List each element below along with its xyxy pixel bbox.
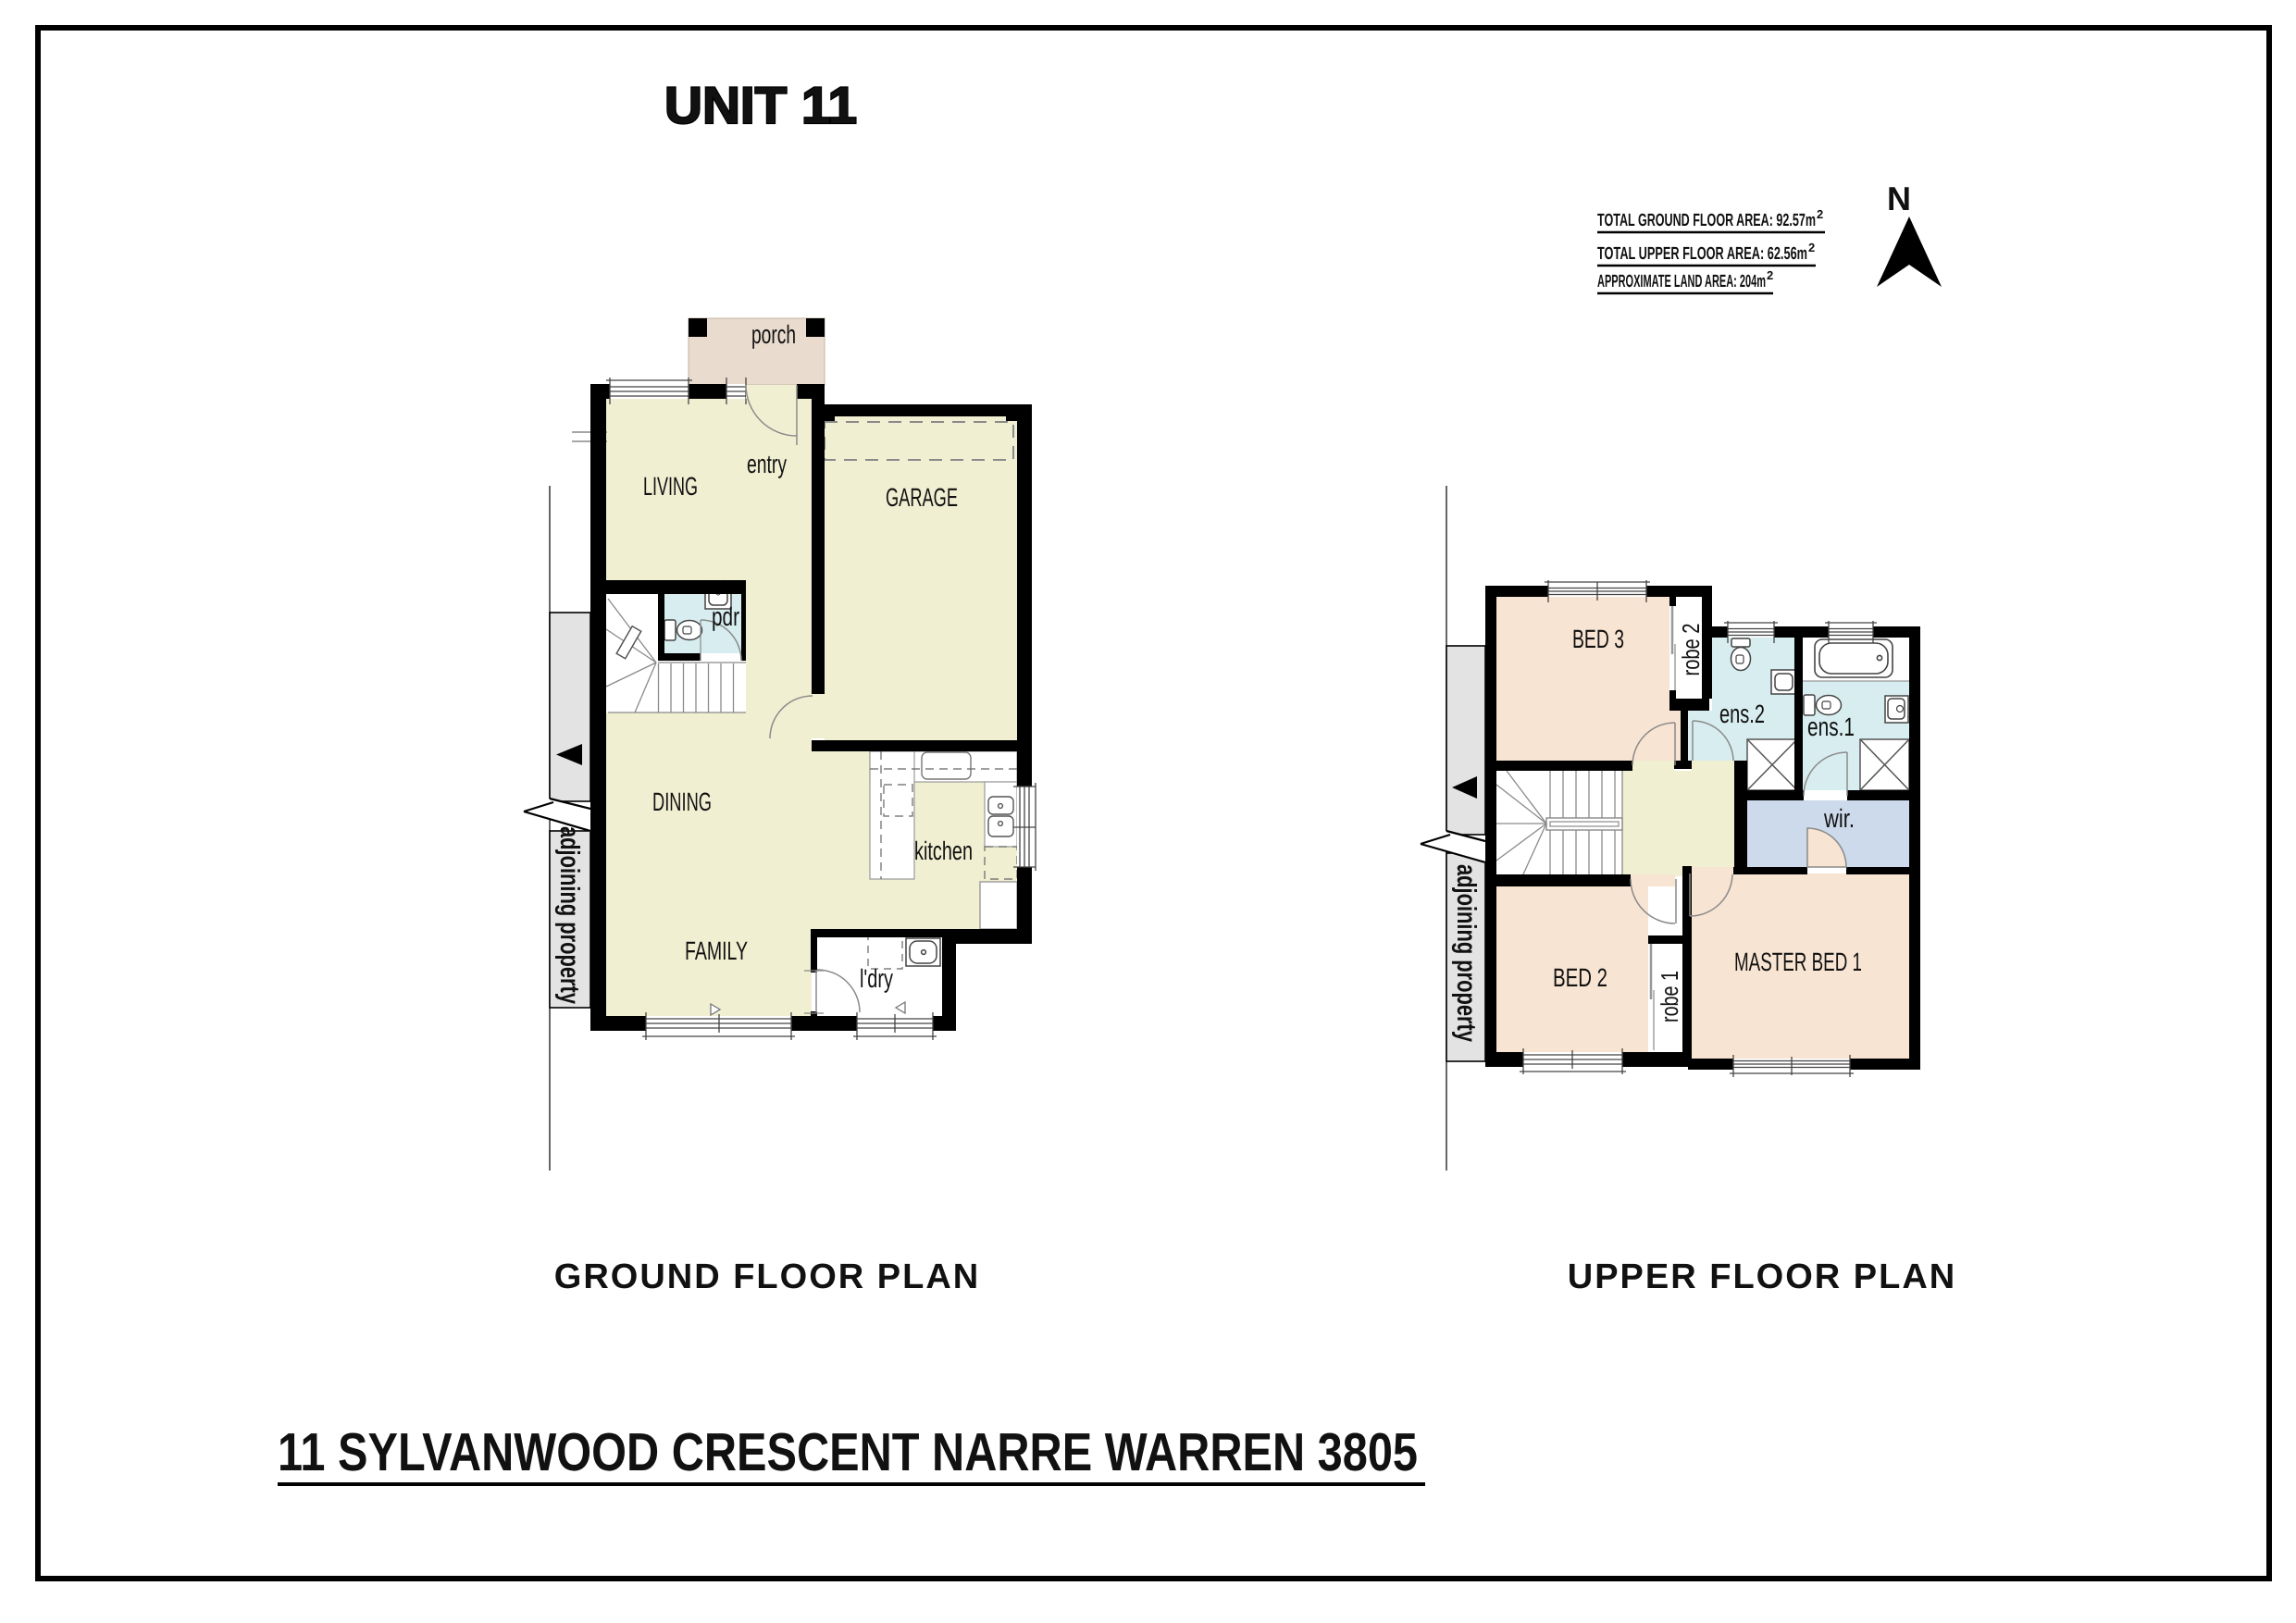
svg-text:DINING: DINING — [652, 787, 712, 816]
svg-text:2: 2 — [1808, 241, 1815, 254]
svg-text:ens.2: ens.2 — [1719, 700, 1765, 728]
svg-text:MASTER BED 1: MASTER BED 1 — [1734, 948, 1862, 976]
svg-text:11 SYLVANWOOD CRESCENT NARRE W: 11 SYLVANWOOD CRESCENT NARRE WARREN 3805 — [278, 1422, 1418, 1482]
svg-text:2: 2 — [1817, 207, 1823, 221]
svg-text:TOTAL UPPER FLOOR AREA: 62.56m: TOTAL UPPER FLOOR AREA: 62.56m — [1597, 244, 1807, 264]
svg-text:l'dry: l'dry — [860, 964, 893, 993]
svg-text:GARAGE: GARAGE — [886, 483, 958, 512]
svg-text:porch: porch — [751, 320, 796, 349]
svg-text:UPPER FLOOR PLAN: UPPER FLOOR PLAN — [1568, 1258, 1956, 1296]
svg-text:adjoining property: adjoining property — [554, 826, 584, 1004]
svg-text:N: N — [1887, 180, 1911, 217]
svg-text:adjoining property: adjoining property — [1451, 864, 1481, 1042]
svg-text:BED 3: BED 3 — [1572, 625, 1624, 653]
svg-text:APPROXIMATE LAND AREA: 204m: APPROXIMATE LAND AREA: 204m — [1597, 272, 1766, 291]
svg-text:robe 1: robe 1 — [1656, 971, 1683, 1022]
svg-text:kitchen: kitchen — [914, 836, 973, 865]
svg-text:UNIT 11: UNIT 11 — [664, 76, 857, 134]
svg-text:LIVING: LIVING — [643, 472, 698, 501]
svg-text:robe 2: robe 2 — [1677, 624, 1705, 676]
svg-text:GROUND FLOOR PLAN: GROUND FLOOR PLAN — [554, 1258, 980, 1296]
svg-text:2: 2 — [1767, 268, 1773, 282]
svg-text:TOTAL GROUND FLOOR AREA: 92.57: TOTAL GROUND FLOOR AREA: 92.57m — [1597, 211, 1816, 230]
svg-text:BED 2: BED 2 — [1553, 963, 1607, 992]
svg-text:pdr: pdr — [712, 602, 739, 631]
svg-text:FAMILY: FAMILY — [685, 936, 748, 965]
svg-text:entry: entry — [747, 450, 787, 478]
svg-text:ens.1: ens.1 — [1807, 712, 1855, 741]
svg-text:wir.: wir. — [1823, 804, 1855, 833]
